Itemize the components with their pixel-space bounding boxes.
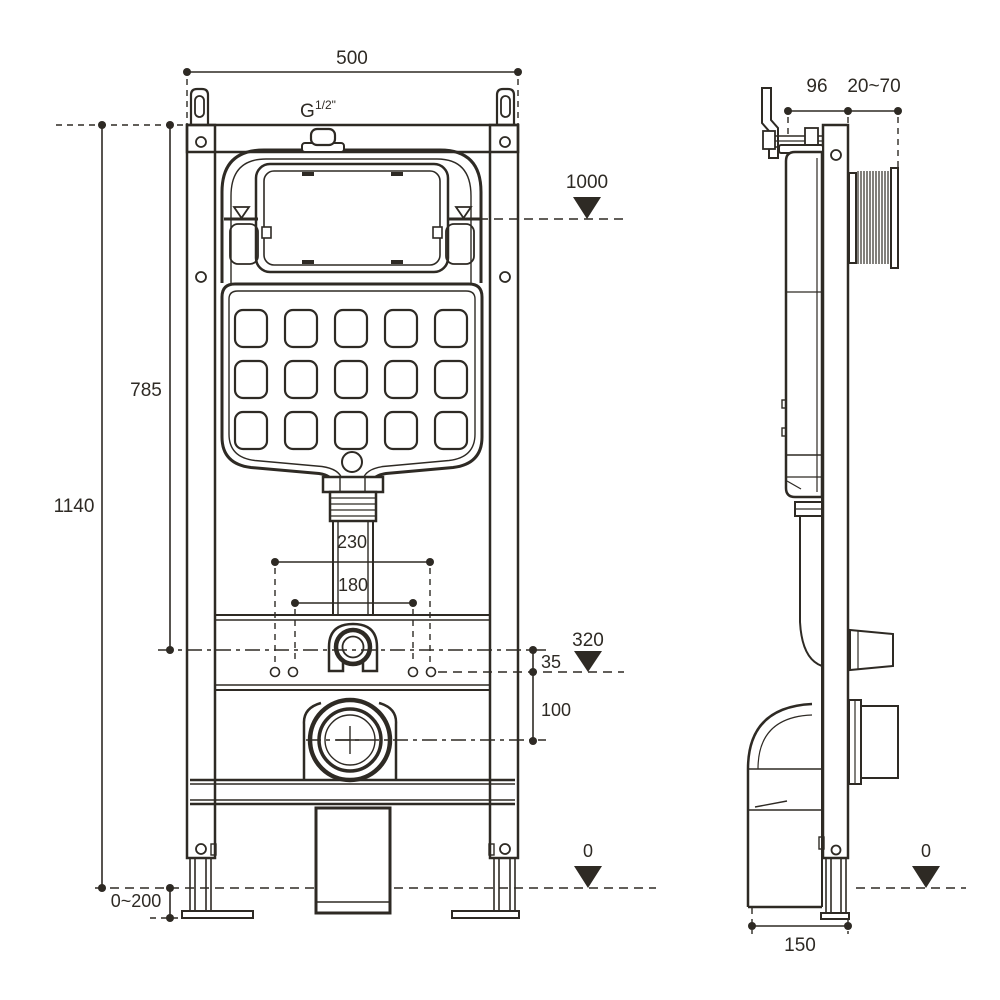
level-marker-icon	[912, 866, 940, 888]
dim-dot	[784, 107, 792, 115]
tank-drain-hole	[342, 452, 362, 472]
tank-side-tab	[782, 400, 786, 408]
side-pocket-right	[446, 224, 474, 264]
dim-label-outlet-drop: 100	[541, 700, 571, 720]
grid-cell	[335, 412, 367, 449]
grid-cell	[385, 412, 417, 449]
frame-left-hanger-tab	[191, 89, 208, 125]
rail-hole	[500, 272, 510, 282]
dim-label-wall-range: 20~70	[847, 76, 900, 97]
corrugated-sleeve	[849, 168, 898, 268]
level-marker-icon	[574, 866, 602, 888]
grid-cell	[435, 412, 467, 449]
side-pocket-left	[230, 224, 258, 264]
window-tick	[391, 172, 403, 176]
dim-dot	[271, 558, 279, 566]
dim-label-frame-height: 1140	[54, 496, 95, 517]
dim-label-bolt-spacing: 180	[338, 575, 368, 595]
dim-label-inlet-thread-size: 1/2"	[315, 98, 336, 112]
outlet-box	[316, 808, 390, 913]
water-level-triangle-icon	[456, 207, 471, 218]
elbow-slant-line	[755, 801, 787, 807]
bolt-hole	[409, 668, 418, 677]
foot-plate	[182, 911, 253, 918]
dim-dot	[409, 599, 417, 607]
flush-bend-fitting	[329, 624, 377, 671]
grid-cell	[385, 361, 417, 398]
rail-hole	[500, 137, 510, 147]
dim-label-floor-level: 0	[583, 841, 593, 861]
foot-plate	[821, 913, 849, 919]
elbow-outer-arc	[748, 704, 812, 769]
rail-hole	[831, 150, 841, 160]
dim-dot	[98, 121, 106, 129]
dim-dot	[166, 884, 174, 892]
stub-body	[850, 630, 893, 670]
sleeve-end-cap	[891, 168, 898, 268]
grid-cell	[285, 361, 317, 398]
valve-thread	[330, 492, 376, 521]
installation-drawing: 500 G 1/2" 1140 785 1000 230	[0, 0, 1000, 1000]
grid-cell	[235, 310, 267, 347]
dim-label-bend-spacing: 230	[337, 532, 367, 552]
grid-cell	[385, 310, 417, 347]
flush-connector-stub	[850, 630, 893, 670]
frame-left-hanger-slot	[195, 96, 204, 117]
cistern-profile	[779, 145, 823, 707]
window-tick	[302, 260, 314, 264]
window-tick	[391, 260, 403, 264]
dim-label-seat-level: 320	[572, 630, 604, 651]
dim-dot	[529, 737, 537, 745]
waste-connector-stub	[849, 700, 898, 784]
window-side-tab	[262, 227, 271, 238]
front-view: 500 G 1/2" 1140 785 1000 230	[54, 48, 656, 922]
dim-dot	[291, 599, 299, 607]
frame-left-rail	[187, 125, 215, 858]
level-marker-icon	[574, 651, 602, 672]
sleeve-end-plate	[849, 173, 856, 263]
cistern-cover-outline	[222, 150, 481, 283]
dim-dot	[844, 922, 852, 930]
elbow-inner-arc	[758, 715, 812, 769]
dim-label-water-level: 1000	[566, 172, 608, 193]
access-window	[256, 164, 448, 272]
dim-dot	[514, 68, 522, 76]
stub-body	[861, 706, 898, 778]
dim-dot	[748, 922, 756, 930]
inlet-cap	[311, 129, 335, 145]
water-level-triangle-icon	[234, 207, 249, 218]
grid-cell	[235, 361, 267, 398]
grid-cell	[235, 412, 267, 449]
dim-dot	[426, 558, 434, 566]
dim-label-cistern-height: 785	[130, 380, 162, 401]
grid-cell	[435, 310, 467, 347]
leg-hole	[500, 844, 510, 854]
grid-cell	[335, 310, 367, 347]
dim-label-feet-range: 0~200	[111, 891, 162, 911]
dim-dot	[894, 107, 902, 115]
side-view: 96 20~70 150 0	[748, 76, 966, 956]
grid-cell	[285, 310, 317, 347]
dim-dot	[844, 107, 852, 115]
leg-hole	[832, 846, 841, 855]
dim-label-inlet-thread: G	[300, 101, 315, 122]
dim-dot	[183, 68, 191, 76]
dim-label-base-depth: 150	[784, 935, 816, 956]
frame-right-rail	[490, 125, 518, 858]
bolt-hole	[289, 668, 298, 677]
dim-label-frame-width: 500	[336, 48, 368, 69]
waste-elbow	[748, 704, 822, 907]
access-window-inner	[264, 171, 440, 265]
bracket-nut	[763, 131, 775, 149]
dim-label-floor-level: 0	[921, 841, 931, 861]
frame-right-hanger-slot	[501, 96, 510, 117]
foot-plate	[452, 911, 519, 918]
leg-hole	[196, 844, 206, 854]
dim-label-frame-depth: 96	[806, 76, 827, 97]
flush-valve	[323, 477, 383, 521]
grid-cell	[435, 361, 467, 398]
tank-grid	[235, 310, 467, 449]
level-marker-icon	[573, 197, 601, 219]
dim-dot	[166, 121, 174, 129]
tank-side-tab	[782, 428, 786, 436]
dim-dot	[529, 646, 537, 654]
flush-elbow-arc	[800, 622, 822, 666]
drawing-canvas: 500 G 1/2" 1140 785 1000 230	[0, 0, 1000, 1000]
frame-right-hanger-tab	[497, 89, 514, 125]
grid-cell	[285, 412, 317, 449]
rail-hole	[196, 272, 206, 282]
grid-cell	[335, 361, 367, 398]
bolt-hole	[427, 668, 436, 677]
bolt-hole	[271, 668, 280, 677]
rail-hole	[196, 137, 206, 147]
dim-label-offset-small: 35	[541, 652, 561, 672]
window-tick	[302, 172, 314, 176]
window-side-tab	[433, 227, 442, 238]
frame-top-bar	[187, 125, 518, 152]
valve-flange	[323, 477, 383, 492]
side-frame-rail	[823, 125, 848, 858]
